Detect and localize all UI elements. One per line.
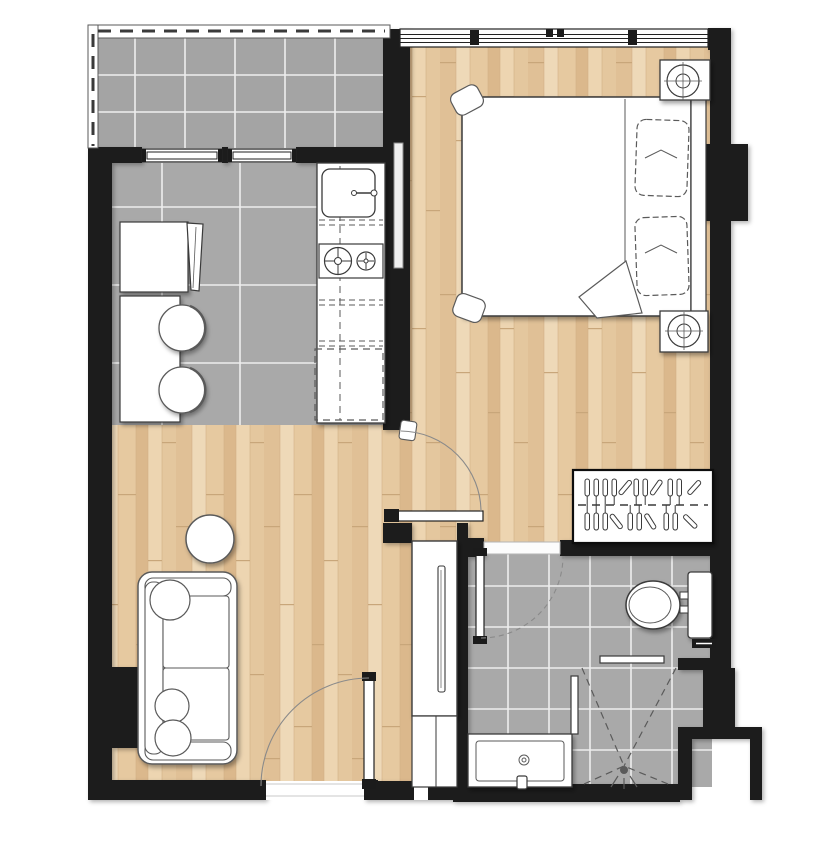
right-wall [710,29,731,668]
window-mullion [470,30,479,45]
hall-wall-stub [383,523,412,543]
toilet-hinge [680,592,688,599]
hanger [637,513,642,530]
hanger [594,479,599,496]
left-wall [88,147,112,800]
sofa-pillow [150,580,190,620]
vanity-drain-inner [522,758,526,762]
hanger [603,513,608,530]
shaft2-right [750,739,762,800]
window-mullion [546,29,553,37]
floor-plan-page [0,0,825,851]
tall-cabinet [412,541,457,716]
toilet-hinge [680,606,688,613]
door-cap [384,509,399,522]
wardrobe [573,470,713,543]
shaft-band-mid [678,727,762,739]
hanger [673,513,678,530]
wall-mirror [394,143,403,268]
hanger [677,479,682,496]
kitchen-window-wall-a [88,147,142,163]
kitchen-window-2 [228,149,296,162]
kitchen-window-1 [142,149,222,162]
vanity-faucet [517,776,527,789]
entry-door-leaf [364,678,374,782]
headboard [691,93,706,319]
window-mullion [628,30,637,45]
toilet-bowl [626,581,680,629]
door-cap [362,672,376,681]
pillow [635,119,690,197]
burner-hub [335,258,342,265]
kitchen-window-wall-b [296,147,390,163]
hanger [628,513,633,530]
door-cap [473,548,487,556]
hanger [585,479,590,496]
hanger [594,513,599,530]
pillow [635,216,690,296]
hanger [612,479,617,496]
door-cap [362,779,376,789]
hanger [634,479,639,496]
shaft1-side [703,668,735,728]
hanger [643,479,648,496]
shower-drain [620,766,628,774]
low-cabinet [412,716,457,787]
bathroom-west-wall [457,523,468,800]
sofa-pillow [155,720,191,756]
entry-jamb-left [252,780,266,800]
kitchen-window-post [222,147,228,163]
hanger [668,479,673,496]
bathroom-door-sill [484,542,560,554]
cabinet-handle [438,566,445,692]
column [701,144,748,221]
bathroom-door-leaf [476,554,484,638]
top-right-post [708,28,731,50]
hanger [603,479,608,496]
window-tick [228,149,232,162]
burner-hub [364,259,368,263]
side-table [186,515,234,563]
door-cap [473,636,487,644]
window-tick [142,149,146,162]
window-tick [292,149,296,162]
window-mullion [557,29,564,37]
sofa-pillow [155,689,189,723]
toilet-cistern [688,572,712,638]
hanger [585,513,590,530]
shower-glass-h [600,656,664,663]
hanger [664,513,669,530]
shaft2-left [678,739,692,800]
bedroom-door-leaf [398,511,483,521]
apartment-floor-plan [0,0,825,851]
faucet-dot [352,191,357,196]
dining-counter [120,222,188,292]
balcony-floor [98,38,387,148]
shower-glass-v [571,676,578,734]
window-tick [218,149,222,162]
bottom-wall-west [88,780,258,800]
bedroom-window-band [400,29,708,47]
faucet-dot [371,190,377,196]
